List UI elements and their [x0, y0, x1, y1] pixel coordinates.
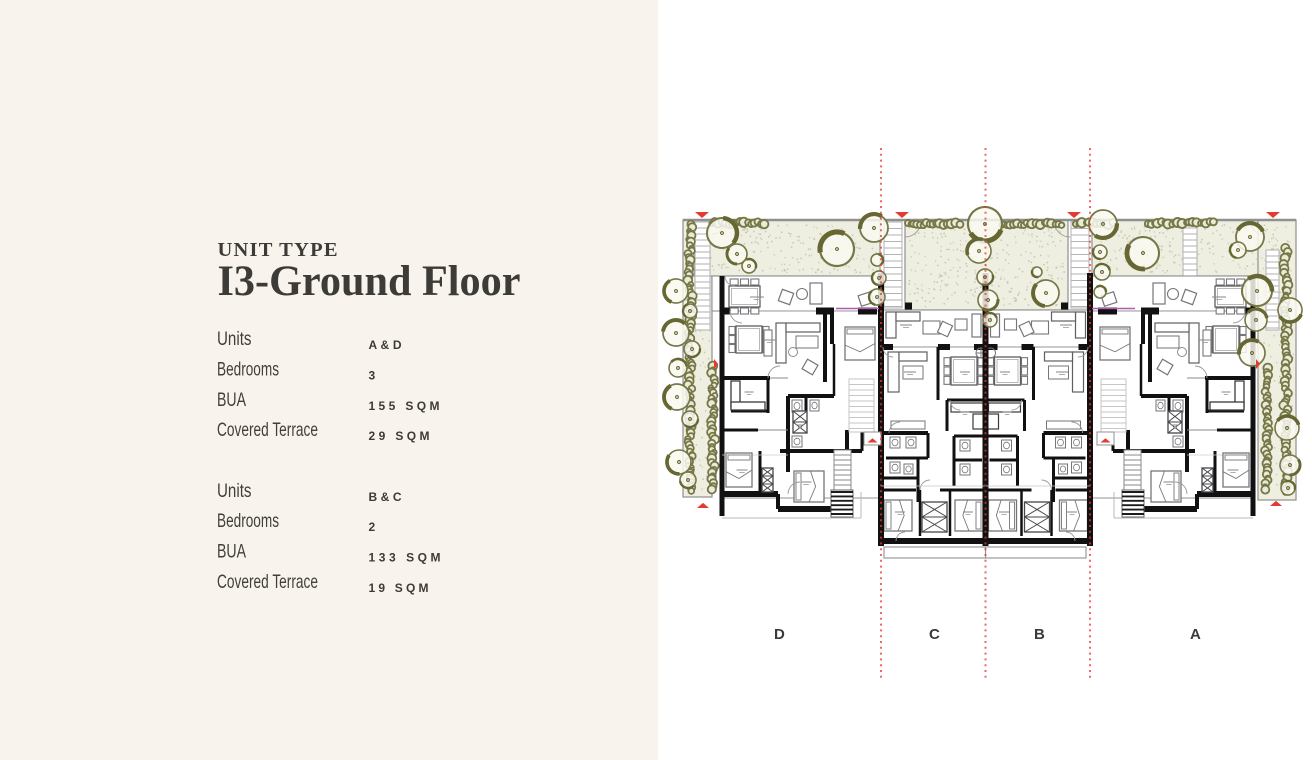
- svg-text:133 SQM: 133 SQM: [369, 551, 441, 565]
- svg-text:B: B: [1034, 626, 1045, 643]
- svg-text:Covered Terrace: Covered Terrace: [217, 571, 318, 593]
- svg-text:Covered Terrace: Covered Terrace: [217, 419, 318, 441]
- svg-text:Units: Units: [217, 480, 252, 502]
- svg-text:I3-Ground Floor: I3-Ground Floor: [218, 258, 521, 305]
- svg-text:D: D: [774, 626, 785, 643]
- svg-text:B & C: B & C: [369, 490, 402, 504]
- svg-text:2: 2: [369, 520, 376, 534]
- svg-text:Units: Units: [217, 328, 252, 350]
- svg-text:19 SQM: 19 SQM: [369, 581, 429, 595]
- svg-text:155 SQM: 155 SQM: [369, 399, 440, 413]
- svg-text:3: 3: [369, 368, 376, 382]
- svg-text:A & D: A & D: [369, 338, 402, 352]
- svg-text:Bedrooms: Bedrooms: [217, 510, 279, 532]
- svg-text:C: C: [929, 626, 940, 643]
- svg-text:Bedrooms: Bedrooms: [217, 358, 279, 380]
- svg-text:A: A: [1190, 626, 1201, 643]
- svg-text:29 SQM: 29 SQM: [369, 429, 430, 443]
- svg-text:BUA: BUA: [217, 541, 246, 563]
- svg-text:BUA: BUA: [217, 389, 246, 411]
